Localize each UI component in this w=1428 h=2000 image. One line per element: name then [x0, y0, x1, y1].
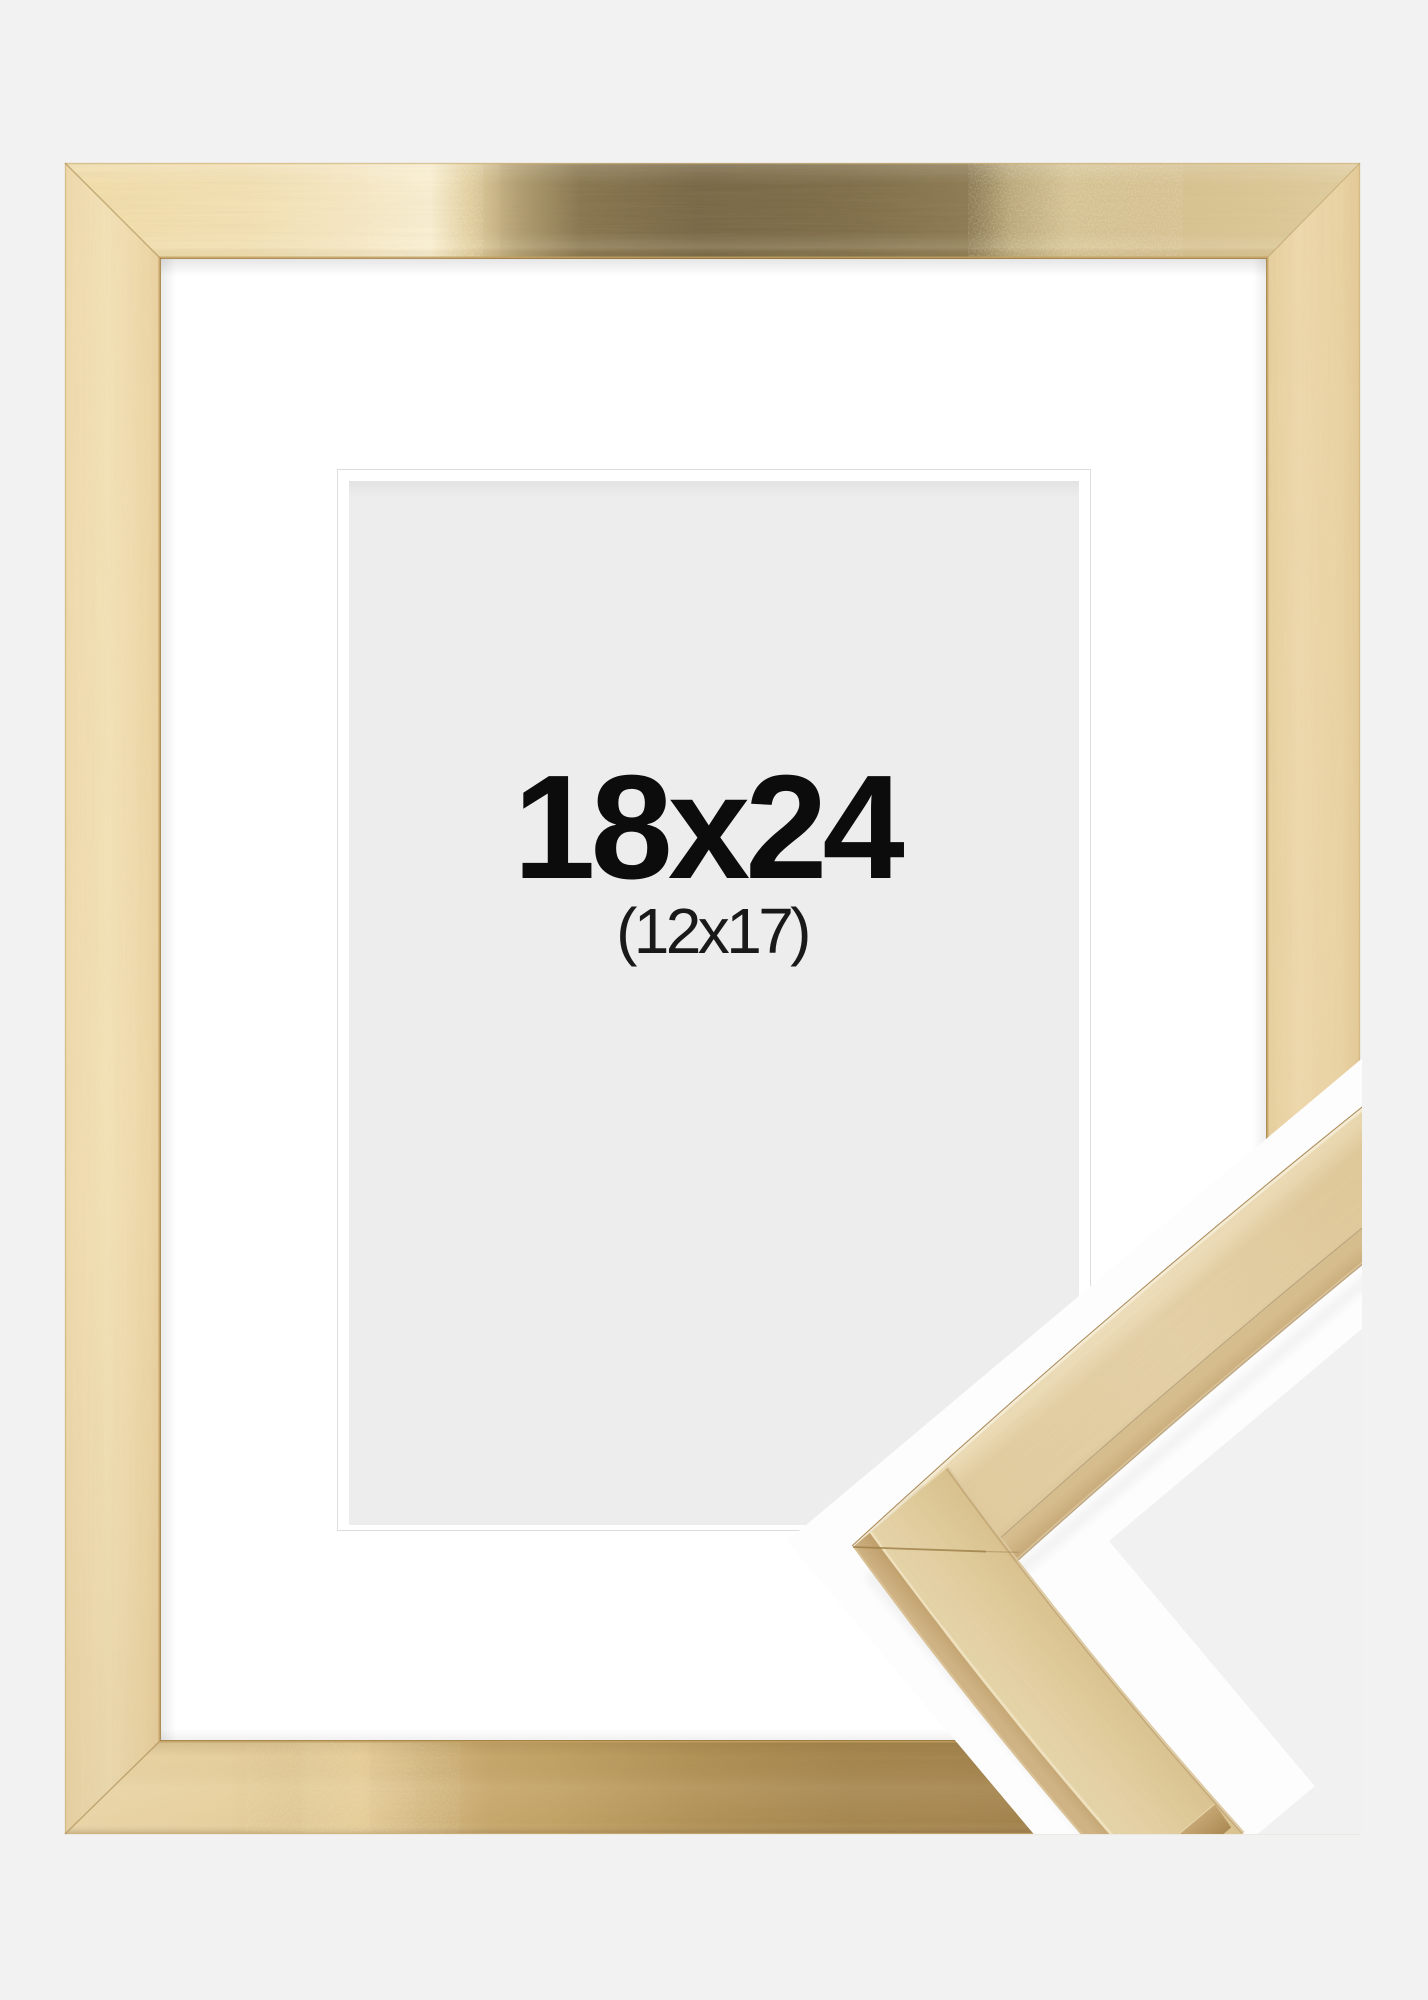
- svg-text:(12x17): (12x17): [616, 895, 808, 967]
- svg-text:18x24: 18x24: [513, 745, 904, 910]
